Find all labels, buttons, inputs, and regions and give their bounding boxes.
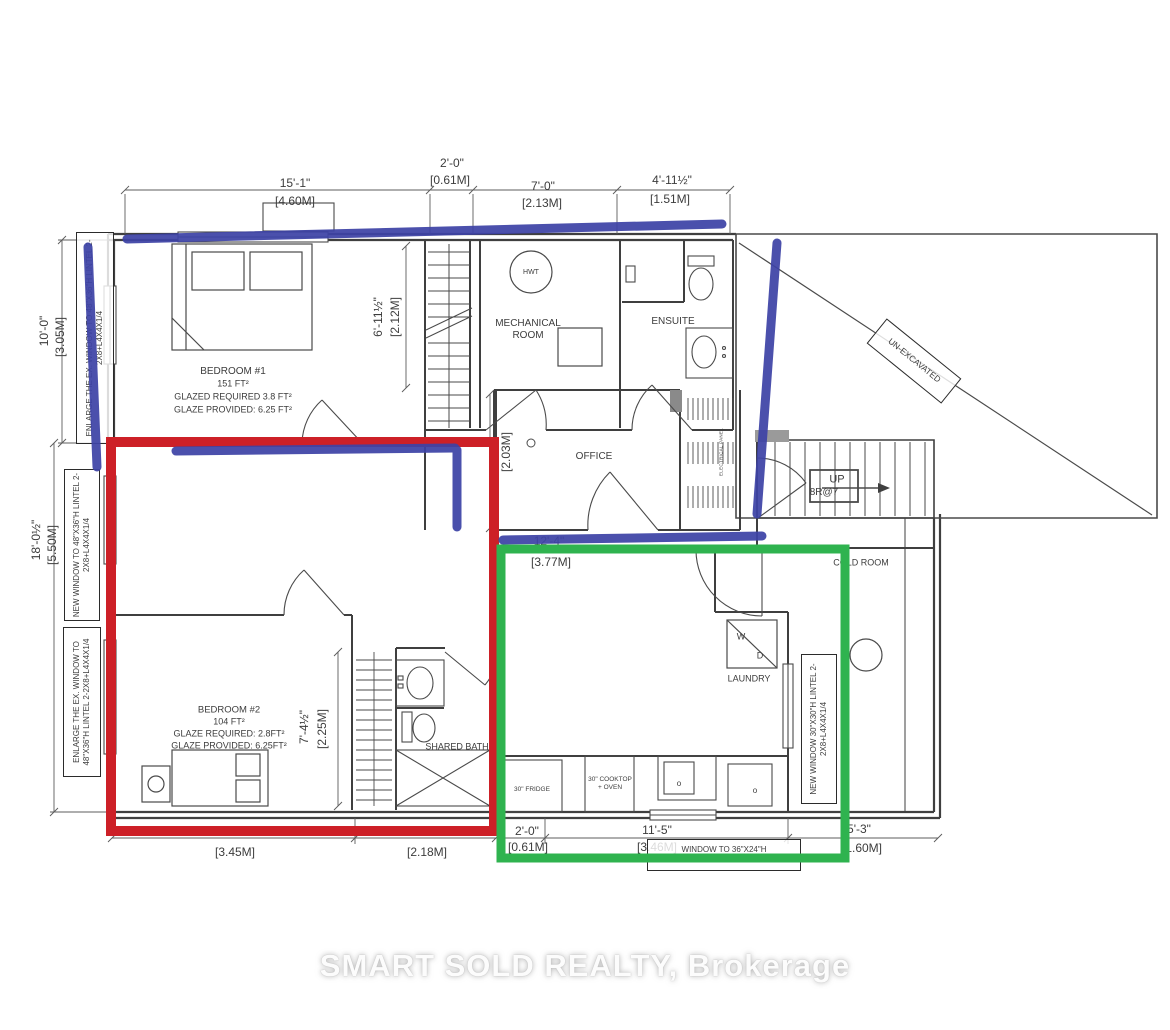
dim-2-0b-ft: 2'-0" xyxy=(515,824,539,838)
dim-2-03-m: [2.03M] xyxy=(499,432,513,472)
note-new-window-right: NEW WINDOW 30"X30"H LINTEL 2-2X8+L4X4X1/… xyxy=(801,654,837,804)
office-label: OFFICE xyxy=(576,451,613,463)
shared-bath-label: SHARED BATH xyxy=(425,742,488,753)
dim-5-3-ft: 5'-3" xyxy=(847,822,871,836)
dim-15-1-ft: 15'-1" xyxy=(280,176,311,190)
dim-10-0-ft: 10'-0" xyxy=(37,316,51,347)
dim-2-0-ft: 2'-0" xyxy=(440,156,464,170)
dim-7-0-m: [2.13M] xyxy=(522,196,562,210)
dim-18-0-m: [5.50M] xyxy=(45,525,59,565)
dim-15-1-m: [4.60M] xyxy=(275,194,315,208)
dim-6-11-ft: 6'-11½" xyxy=(371,297,385,337)
bedroom1-glaze-provided: GLAZE PROVIDED: 6.25 FT² xyxy=(174,405,292,416)
dim-2-0-m: [0.61M] xyxy=(430,173,470,187)
stairs-up-label: UP xyxy=(829,473,844,486)
laundry-label: LAUNDRY xyxy=(728,674,771,685)
watermark: SMART SOLD REALTY, Brokerage xyxy=(320,948,850,984)
cooktop-label: 30" COOKTOP + OVEN xyxy=(586,776,634,792)
note-enlarge-window-bottom: ENLARGE THE EX. WINDOW TO 48"X36"H LINTE… xyxy=(63,627,101,777)
fridge-label: 30" FRIDGE xyxy=(514,786,550,794)
electrical-panel-label: ELECTRICAL PANEL xyxy=(718,428,723,476)
dim-18-0-ft: 18'-0½" xyxy=(29,520,43,561)
dim-4-11-ft: 4'-11½" xyxy=(652,173,692,187)
dim-1-60-m: [1.60M] xyxy=(842,841,882,855)
bedroom2-area: 104 FT² xyxy=(213,717,245,728)
dim-2-0b-m: [0.61M] xyxy=(508,840,548,854)
sink-knob-label: o xyxy=(677,779,681,789)
dim-7-0-ft: 7'-0" xyxy=(531,179,555,193)
bedroom2-glaze-provided: GLAZE PROVIDED: 6.25FT² xyxy=(171,741,287,752)
bedroom1-area: 151 FT² xyxy=(217,379,249,390)
dim-12-4-ft: 12'-4" xyxy=(534,534,565,548)
bedroom1-glazed-required: GLAZED REQUIRED 3.8 FT² xyxy=(174,392,292,403)
dryer-label: D xyxy=(757,651,764,662)
cold-room-label: COLD ROOM xyxy=(833,558,889,569)
dim-7-4-ft: 7'-4½" xyxy=(297,710,311,744)
note-new-window-left: NEW WINDOW TO 48"X36"H LINTEL 2-2X8+L4X4… xyxy=(64,469,100,621)
bedroom2-label: BEDROOM #2 xyxy=(198,704,260,715)
washer-label: W xyxy=(737,632,746,643)
bedroom2-glaze-required: GLAZE REQUIRED: 2.8FT² xyxy=(173,729,284,740)
text-layer: 15'-1" [4.60M] 2'-0" [0.61M] 7'-0" [2.13… xyxy=(0,0,1170,1030)
dim-7-4-m: [2.25M] xyxy=(315,709,329,749)
hwt-label: HWT xyxy=(523,269,539,277)
dim-2-18-m: [2.18M] xyxy=(407,845,447,859)
note-window-bottom-line1: WINDOW TO 36"X24"H xyxy=(682,845,767,855)
dim-4-11-m: [1.51M] xyxy=(650,192,690,206)
note-window-bottom: WINDOW TO 36"X24"H LINTEL 2-2X8+L4X4X1/4 xyxy=(647,839,801,871)
note-window-bottom-line2: LINTEL 2-2X8+L4X4X1/4 xyxy=(679,855,769,865)
dim-12-4-m: [3.77M] xyxy=(531,555,571,569)
dim-11-5-ft: 11'-5" xyxy=(642,823,672,837)
mechanical-room-label: MECHANICAL ROOM xyxy=(483,318,573,342)
unexcavated-label: UN-EXCAVATED xyxy=(867,318,962,403)
dishwasher-knob-label: o xyxy=(753,786,757,796)
dim-6-11-m: [2.12M] xyxy=(388,297,402,337)
dim-10-0-m: [3.05M] xyxy=(53,317,67,357)
ensuite-label: ENSUITE xyxy=(651,316,694,328)
stairs-risers-label: 8R@7 xyxy=(810,487,839,499)
dim-3-45-m: [3.45M] xyxy=(215,845,255,859)
note-enlarge-window-top: ENLARGE THE EX. WINDOW TO 48"X36"H LINTE… xyxy=(76,232,114,444)
bedroom1-label: BEDROOM #1 xyxy=(200,366,266,378)
